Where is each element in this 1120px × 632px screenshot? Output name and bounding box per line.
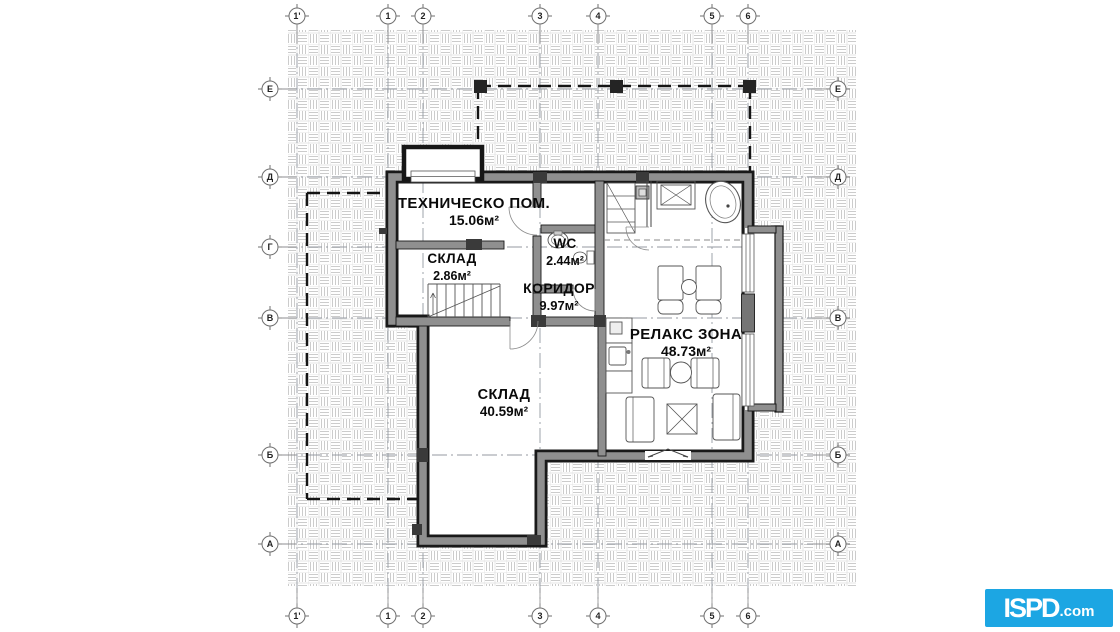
axis-marker-label: А: [267, 539, 274, 549]
kitchenette: [606, 318, 632, 393]
room-name: РЕЛАКС ЗОНА: [630, 326, 742, 343]
axis-marker-label: Д: [835, 172, 842, 182]
room-name: ТЕХНИЧЕСКО ПОМ.: [398, 195, 550, 212]
axis-marker-label: 5: [709, 11, 714, 21]
axis-marker-label: Е: [267, 84, 273, 94]
axis-marker-label: В: [835, 313, 842, 323]
room-area: 48.73м²: [661, 343, 711, 359]
axis-marker-label: Г: [267, 242, 272, 252]
room-area: 40.59м²: [480, 404, 529, 419]
axis-marker-label: 3: [537, 611, 542, 621]
axis-marker-label: 2: [420, 611, 425, 621]
room-name: КОРИДОР: [523, 280, 595, 296]
room-name: WC: [553, 236, 576, 251]
axis-marker-label: Е: [835, 84, 841, 94]
room-name: СКЛАД: [427, 251, 476, 266]
room-area: 2.44м²: [546, 254, 584, 268]
floor-plan-drawing: ТЕХНИЧЕСКО ПОМ.15.06м²СКЛАД2.86м²WC2.44м…: [0, 0, 1120, 632]
axis-marker-label: 1: [385, 611, 390, 621]
axis-marker-label: 4: [595, 11, 600, 21]
axis-marker-label: 1: [385, 11, 390, 21]
axis-marker-label: 1': [293, 11, 300, 21]
logo-text: ISPD: [1003, 595, 1058, 622]
axis-marker-label: В: [267, 313, 274, 323]
bay-window: [742, 226, 784, 412]
room-area: 15.06м²: [449, 212, 499, 228]
axis-marker-label: 6: [745, 611, 750, 621]
axis-marker-label: Б: [835, 450, 842, 460]
axis-marker-label: 6: [745, 11, 750, 21]
axis-marker-label: Д: [267, 172, 274, 182]
logo-suffix: .com: [1060, 604, 1095, 619]
axis-marker-label: А: [835, 539, 842, 549]
axis-marker-label: 2: [420, 11, 425, 21]
axis-marker-label: 1': [293, 611, 300, 621]
light-well: [404, 147, 482, 182]
room-area: 2.86м²: [433, 269, 471, 283]
axis-marker-label: 5: [709, 611, 714, 621]
floor-plan-page: ТЕХНИЧЕСКО ПОМ.15.06м²СКЛАД2.86м²WC2.44м…: [0, 0, 1120, 632]
axis-marker-label: Б: [267, 450, 274, 460]
logo-ispd[interactable]: ISPD.com: [985, 589, 1113, 627]
room-area: 9.97м²: [539, 298, 579, 313]
room-name: СКЛАД: [478, 387, 531, 403]
axis-marker-label: 4: [595, 611, 600, 621]
axis-marker-label: 3: [537, 11, 542, 21]
